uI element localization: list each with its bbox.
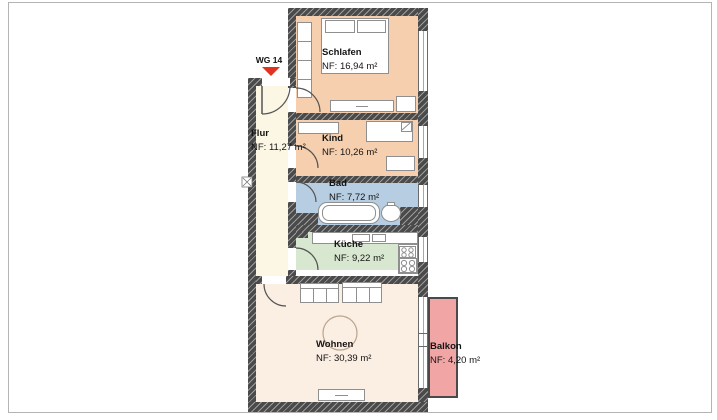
door-opening-kueche [288,248,296,270]
door-opening-entrance [262,78,290,86]
pillow [325,20,355,33]
sofa [300,283,339,303]
wall-segment [418,158,428,185]
room-label-flur: Flur NF: 11,27 m² [251,127,306,155]
wall-segment [288,202,296,248]
wall-pier [296,213,318,225]
wardrobe [297,22,312,98]
wall-segment [418,91,428,126]
sideboard [318,389,365,401]
window-bad [418,185,428,207]
room-area: NF: 7,72 m² [329,191,379,205]
room-name: Bad [329,177,379,191]
tap [387,202,395,206]
door-opening-bad [288,182,296,202]
wall-pier [296,232,308,238]
room-area: NF: 10,26 m² [322,146,377,160]
sofa [342,282,382,303]
room-area: NF: 16,94 m² [322,60,377,74]
wall-segment [248,402,428,412]
dresser [330,100,394,112]
room-area: NF: 11,27 m² [251,141,306,155]
room-label-kind: Kind NF: 10,26 m² [322,132,377,160]
room-flur-floor [256,86,288,276]
bathtub [318,202,380,224]
wall-segment [418,207,428,237]
wall-segment [418,388,428,402]
wall-segment [296,113,418,120]
room-label-schlafen: Schlafen NF: 16,94 m² [322,46,377,74]
window-glass-line [423,297,424,388]
room-name: Flur [251,127,306,141]
pillow [401,122,412,132]
room-area: NF: 4,20 m² [430,354,480,368]
wall-segment [288,168,296,182]
room-label-kueche: Küche NF: 9,22 m² [334,238,384,266]
room-name: Balkon [430,340,480,354]
wall-segment [288,8,428,16]
wall-segment [418,8,428,31]
entrance-arrow-icon [262,67,280,76]
stove [399,258,417,273]
pillow [357,20,386,33]
window-glass-line [423,185,424,207]
room-name: Wohnen [316,338,371,352]
room-label-balkon: Balkon NF: 4,20 m² [430,340,480,368]
wall-segment [418,262,428,297]
glazing-divider [419,346,427,347]
glazing-divider [419,333,427,334]
entrance-unit-label: WG 14 [249,55,289,65]
cabinet [396,96,416,112]
room-name: Küche [334,238,384,252]
room-label-wohnen: Wohnen NF: 30,39 m² [316,338,371,366]
room-name: Schlafen [322,46,377,60]
desk [386,156,415,171]
sink-unit [399,246,416,258]
window-kind [418,126,428,158]
balcony-door-glazing [418,297,428,388]
door-opening-schlafen [288,88,296,112]
wall-segment [290,78,296,86]
window-glass-line [423,126,424,158]
room-area: NF: 30,39 m² [316,352,371,366]
wall-segment [288,8,296,88]
room-area: NF: 9,22 m² [334,252,384,266]
floor-plan-canvas: WG 14 Schlafen NF: 16,94 m² Kind NF: 10,… [0,0,717,420]
window-kueche [418,237,428,262]
window-glass-line [423,31,424,91]
room-name: Kind [322,132,377,146]
room-label-bad: Bad NF: 7,72 m² [329,177,379,205]
washbasin [381,204,401,222]
window-schlafen [418,31,428,91]
wall-pier [400,207,418,225]
door-opening-wohnen [262,276,286,284]
window-glass-line [423,237,424,262]
wall-segment [296,225,418,232]
